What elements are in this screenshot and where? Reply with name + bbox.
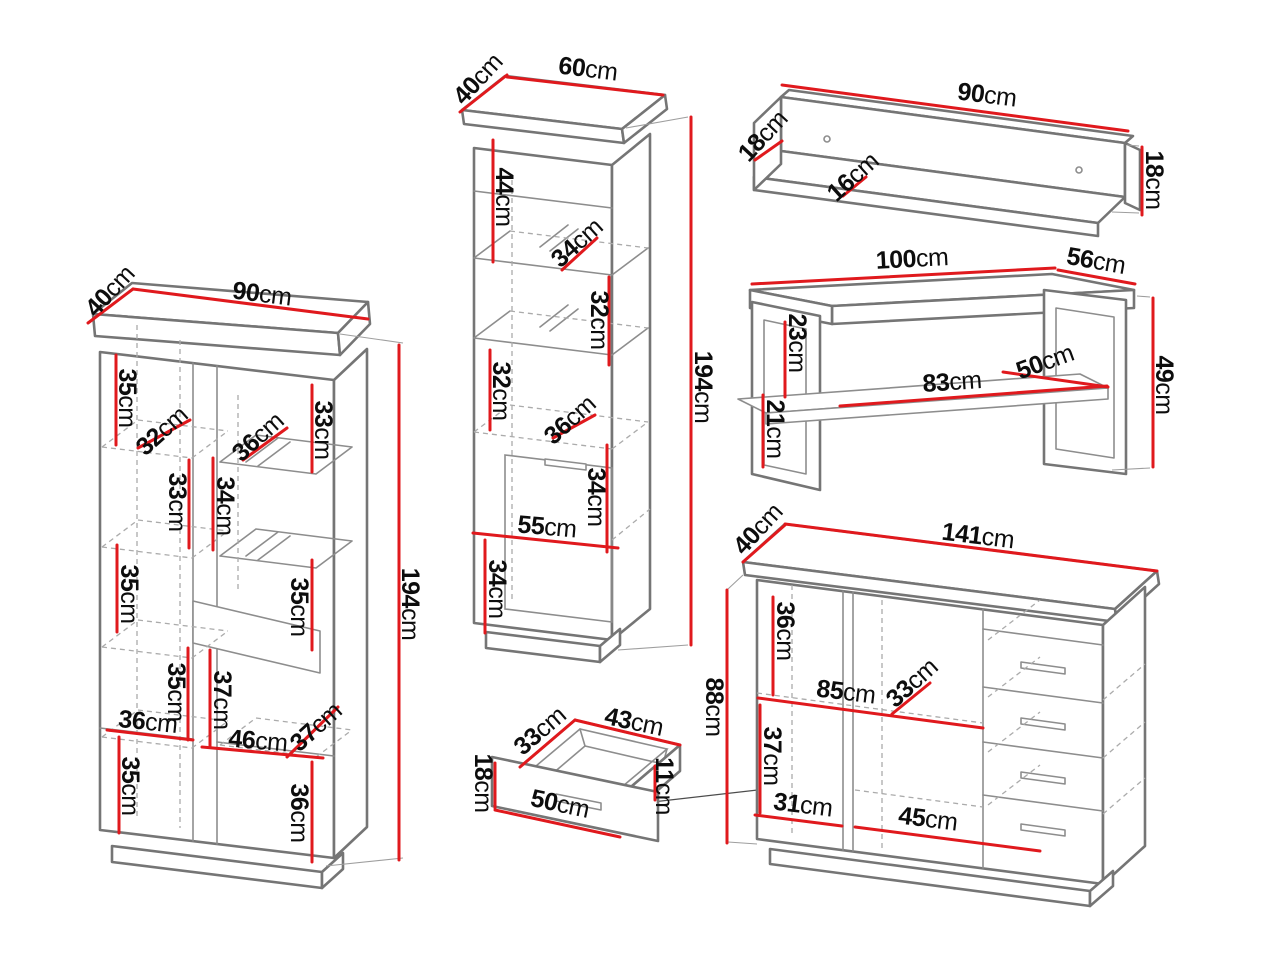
dim-b-44-top: 44cm <box>490 167 518 226</box>
dim-c-height-18: 18cm <box>1140 150 1168 209</box>
dim-d-width-100: 100cm <box>875 243 949 275</box>
sideboard-structure <box>743 524 1159 906</box>
dim-d-height-49: 49cm <box>1150 355 1178 414</box>
furniture-dimensions-diagram: 40cm 90cm 35cm 32cm 36cm 33cm 33cm 34cm … <box>0 0 1273 955</box>
piece-display-cabinet-60: 40cm 60cm 44cm 34cm 32cm 32cm 36cm 34cm … <box>448 48 717 662</box>
dim-a-37-lower-center: 37cm <box>208 670 236 729</box>
dim-c-width-90: 90cm <box>956 78 1018 113</box>
dim-b-34-bottom: 34cm <box>483 559 511 618</box>
piece-wall-shelf: 90cm 18cm 16cm 18cm <box>733 78 1168 236</box>
dim-b-width-60: 60cm <box>557 52 619 87</box>
dim-b-32-right: 32cm <box>585 290 613 349</box>
dim-a-35-top-left: 35cm <box>113 368 141 427</box>
dim-a-35-bottom-left: 35cm <box>116 756 144 815</box>
dim-d-83-shelf: 83cm <box>922 366 983 398</box>
wall-shelf-structure <box>754 90 1140 236</box>
dim-e-side-height-11: 11cm <box>650 757 678 815</box>
piece-sideboard: 40cm 141cm 88cm 36cm 85cm 33cm 37cm 31cm… <box>700 498 1159 906</box>
dim-f-height-88: 88cm <box>700 677 728 736</box>
dim-b-32-left: 32cm <box>487 361 515 420</box>
dim-f-36-upper: 36cm <box>771 601 799 660</box>
dim-a-33-right: 33cm <box>309 400 337 459</box>
dim-b-55-width: 55cm <box>516 510 577 543</box>
piece-display-cabinet-90: 40cm 90cm 35cm 32cm 36cm 33cm 33cm 34cm … <box>80 260 424 888</box>
dim-a-35-mid-left: 35cm <box>115 564 143 623</box>
dim-b-height-194: 194cm <box>689 351 717 424</box>
piece-drawer-box: 33cm 43cm 18cm 50cm 11cm <box>469 701 680 841</box>
dim-a-34-center: 34cm <box>211 476 239 535</box>
dim-a-36-bottom-right: 36cm <box>285 783 313 842</box>
dim-a-33-center: 33cm <box>163 472 191 531</box>
dim-d-21-gap: 21cm <box>761 399 789 458</box>
dim-a-height-194: 194cm <box>396 568 424 641</box>
dim-a-46-width: 46cm <box>227 724 288 757</box>
dim-a-35-mid-right: 35cm <box>285 577 313 636</box>
diagram-canvas: 40cm 90cm 35cm 32cm 36cm 33cm 33cm 34cm … <box>0 0 1273 955</box>
dim-b-34-door: 34cm <box>582 467 610 526</box>
dim-f-37-lower: 37cm <box>758 726 786 785</box>
piece-coffee-table: 100cm 56cm 23cm 21cm 83cm 50cm 49cm <box>738 242 1178 490</box>
dim-e-front-height-18: 18cm <box>469 753 497 812</box>
dim-d-23-gap: 23cm <box>783 313 811 372</box>
